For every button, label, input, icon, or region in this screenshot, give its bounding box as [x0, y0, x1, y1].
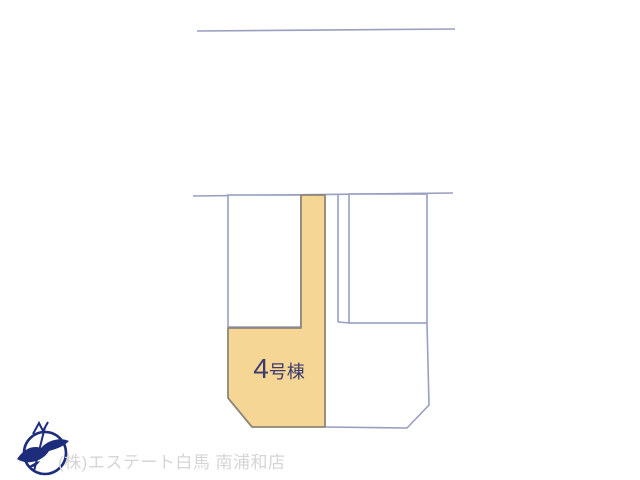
lot-boundary-drawing — [0, 0, 640, 480]
lot-right-neighbor — [349, 194, 427, 323]
footer: (株)エステート白馬 南浦和店 — [0, 422, 640, 480]
lot-left-neighbor — [228, 195, 301, 327]
lot-suffix: 号棟 — [269, 362, 305, 382]
lot-4-label: 4号棟 — [246, 352, 312, 391]
lot-number: 4 — [253, 353, 269, 384]
company-name-watermark: (株)エステート白馬 南浦和店 — [58, 448, 286, 473]
plot-map-canvas: 4号棟 (株)エステート白馬 南浦和店 — [0, 0, 640, 480]
outer-boundary-bottom-right — [325, 323, 429, 428]
road-edge-line-top — [197, 29, 455, 31]
